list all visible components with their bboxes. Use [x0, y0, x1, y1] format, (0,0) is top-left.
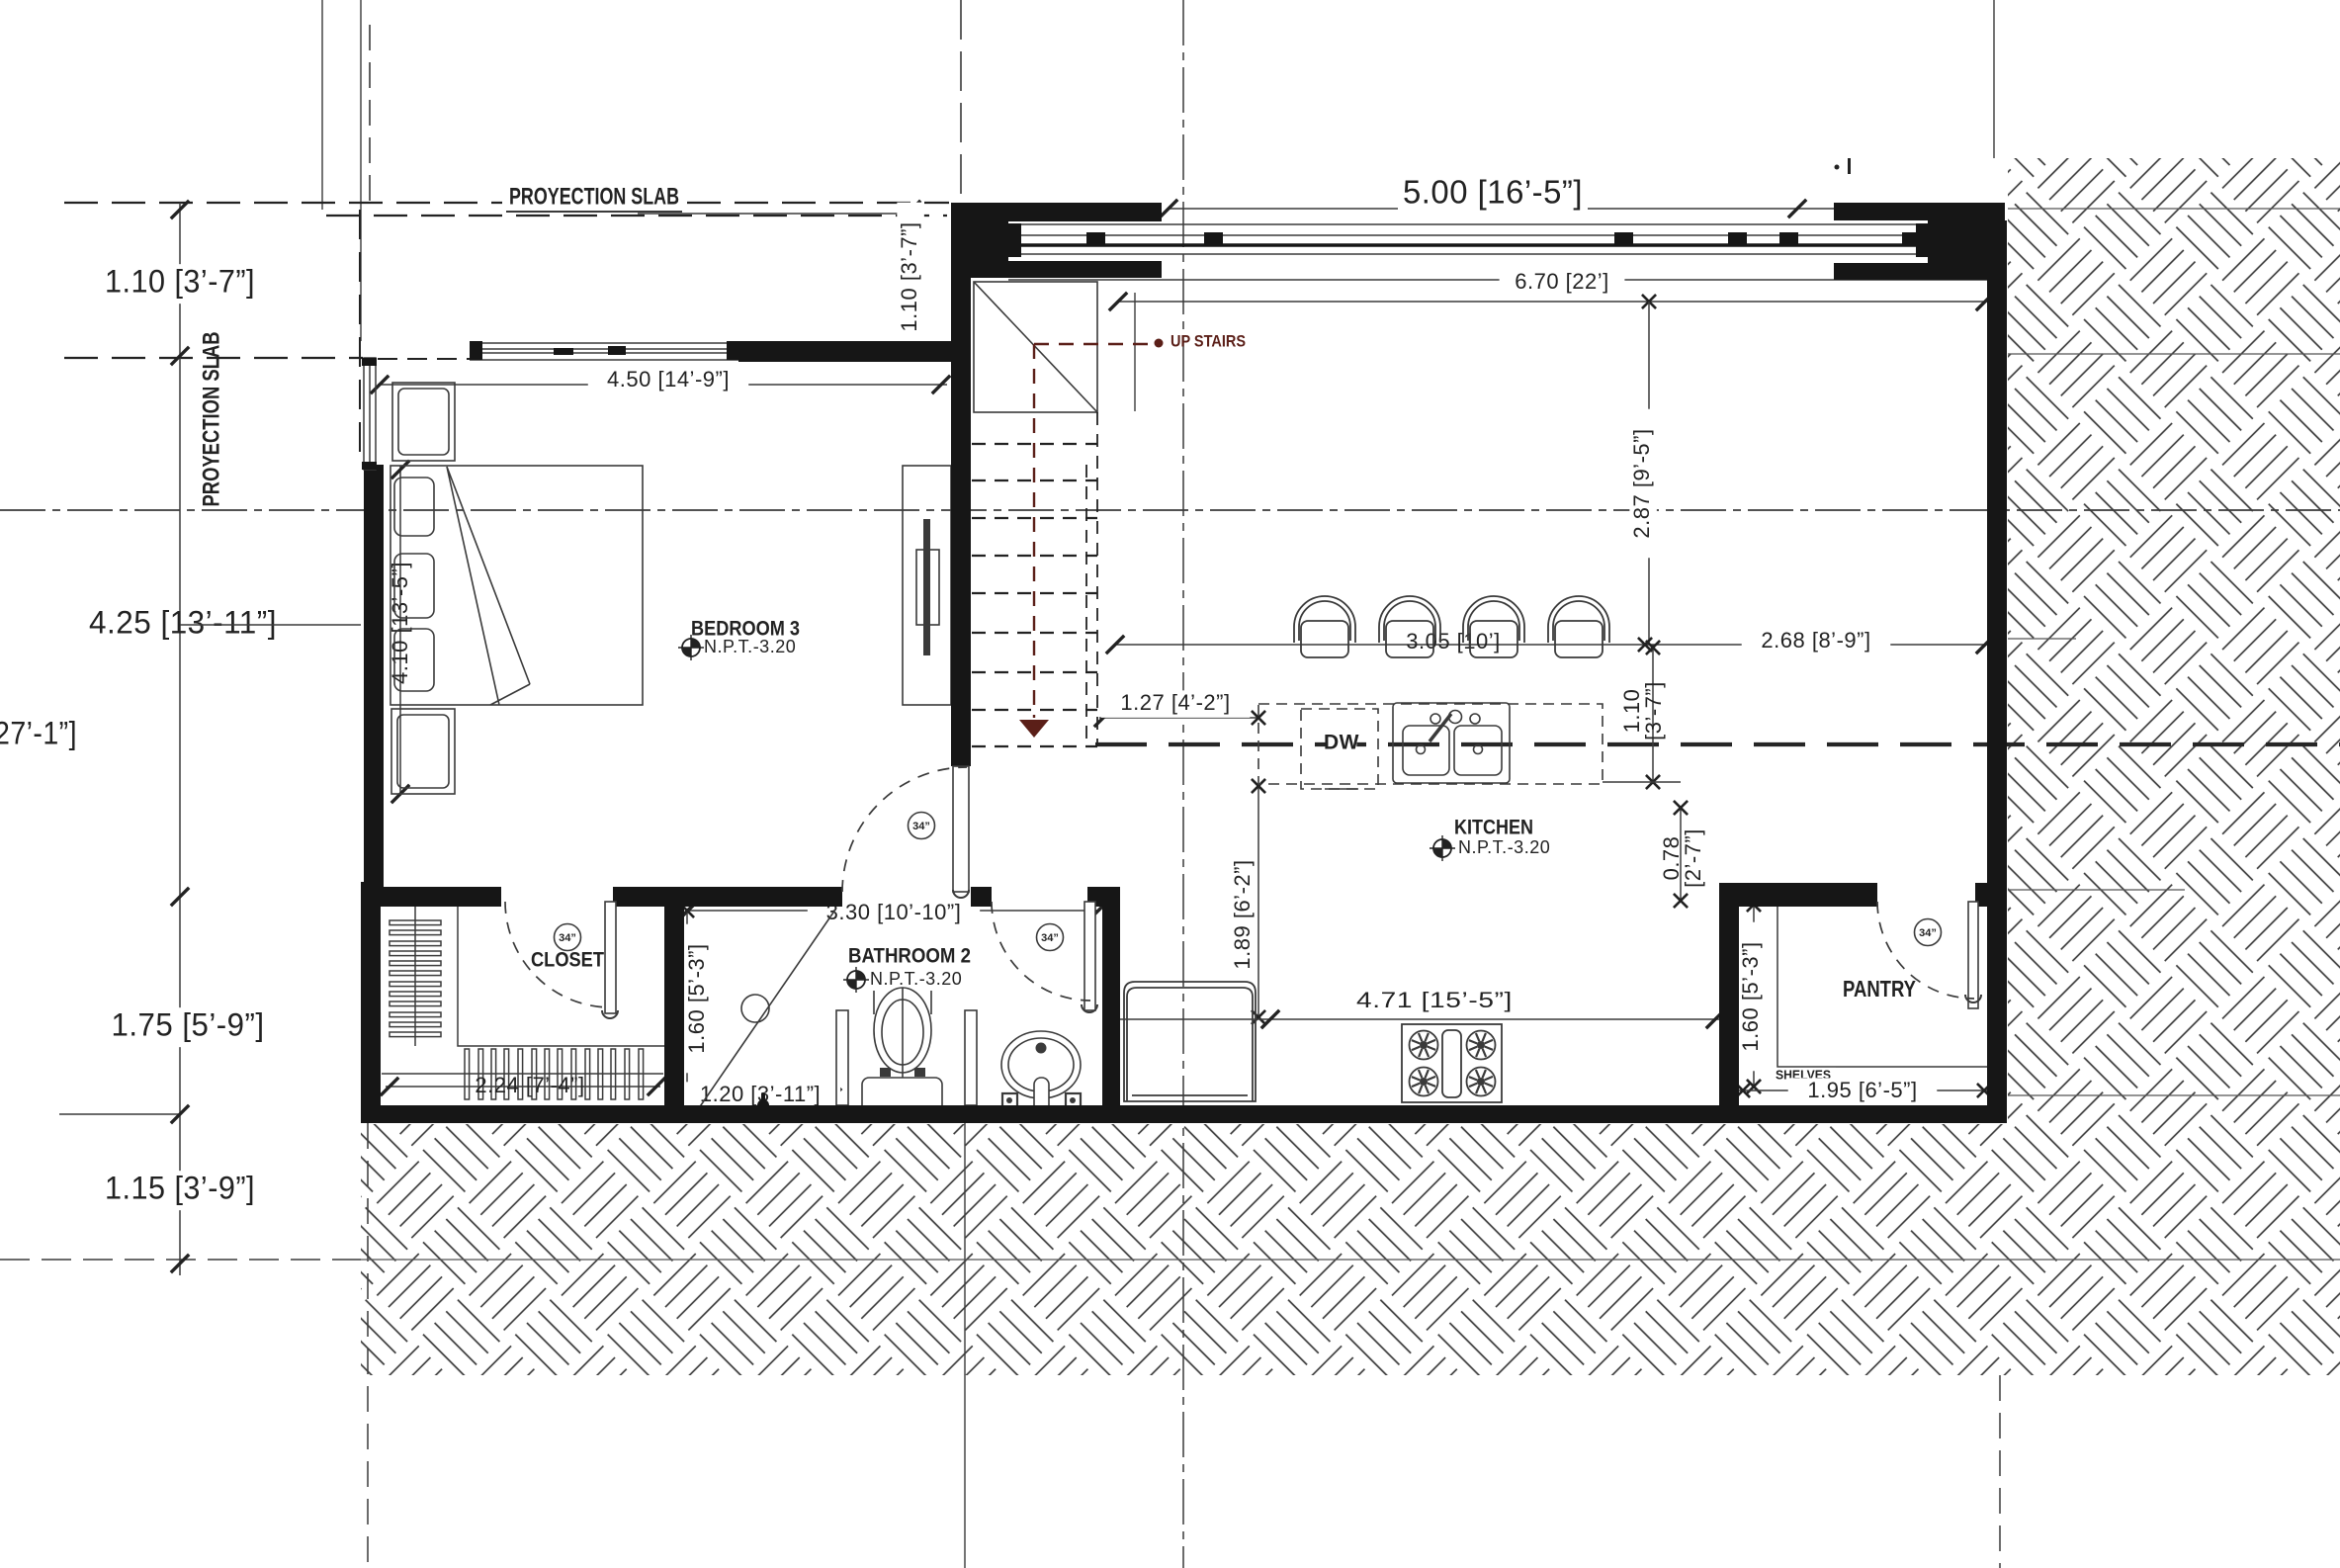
svg-text:PROYECTION SLAB: PROYECTION SLAB — [509, 183, 679, 210]
svg-text:1.60 [5’-3”]: 1.60 [5’-3”] — [684, 943, 709, 1053]
svg-text:1.10 [3’-7”]: 1.10 [3’-7”] — [897, 221, 921, 331]
svg-text:N.P.T.-3.20: N.P.T.-3.20 — [704, 637, 796, 656]
svg-text:2.87 [9’-5”]: 2.87 [9’-5”] — [1629, 428, 1654, 538]
svg-text:4.71 [15’-5”]: 4.71 [15’-5”] — [1356, 988, 1513, 1012]
svg-text:34”: 34” — [912, 821, 930, 832]
svg-text:2.24 [7’-4”]: 2.24 [7’-4”] — [475, 1073, 584, 1097]
svg-text:[2’-7”]: [2’-7”] — [1681, 828, 1705, 888]
svg-text:KITCHEN: KITCHEN — [1454, 817, 1533, 839]
svg-text:1.15 [3’-9”]: 1.15 [3’-9”] — [105, 1170, 255, 1205]
svg-text:27’-1”]: 27’-1”] — [0, 715, 77, 750]
svg-text:4.25 [13’-11”]: 4.25 [13’-11”] — [89, 604, 277, 640]
svg-text:1.60 [5’-3”]: 1.60 [5’-3”] — [1738, 941, 1763, 1051]
svg-text:PROYECTION SLAB: PROYECTION SLAB — [198, 332, 224, 507]
svg-text:1.89 [6’-2”]: 1.89 [6’-2”] — [1230, 859, 1255, 969]
svg-text:3.05 [10’]: 3.05 [10’] — [1406, 629, 1501, 653]
svg-text:1.75 [5’-9”]: 1.75 [5’-9”] — [112, 1006, 265, 1042]
svg-text:N.P.T.-3.20: N.P.T.-3.20 — [870, 969, 962, 989]
svg-text:34”: 34” — [559, 932, 576, 944]
svg-text:1.10 [3’-7”]: 1.10 [3’-7”] — [105, 263, 255, 299]
svg-text:4.50 [14’-9”]: 4.50 [14’-9”] — [607, 367, 730, 392]
svg-text:BATHROOM 2: BATHROOM 2 — [848, 945, 971, 968]
svg-text:[3’-7”]: [3’-7”] — [1641, 681, 1666, 740]
svg-text:1.27 [4’-2”]: 1.27 [4’-2”] — [1120, 690, 1230, 715]
svg-text:3.30 [10’-10”]: 3.30 [10’-10”] — [826, 900, 962, 924]
svg-text:34”: 34” — [1919, 927, 1937, 939]
svg-text:DW: DW — [1324, 732, 1359, 754]
svg-text:6.70 [22’]: 6.70 [22’] — [1515, 269, 1609, 294]
svg-text:CLOSET: CLOSET — [531, 949, 604, 972]
svg-text:N.P.T.-3.20: N.P.T.-3.20 — [1458, 837, 1550, 857]
svg-text:2.68 [8’-9”]: 2.68 [8’-9”] — [1761, 628, 1870, 653]
svg-text:1.95 [6’-5”]: 1.95 [6’-5”] — [1807, 1078, 1917, 1102]
svg-text:UP STAIRS: UP STAIRS — [1170, 331, 1246, 350]
svg-text:5.00 [16’-5”]: 5.00 [16’-5”] — [1403, 174, 1583, 211]
svg-text:34”: 34” — [1041, 932, 1059, 944]
svg-text:PANTRY: PANTRY — [1843, 976, 1916, 1002]
